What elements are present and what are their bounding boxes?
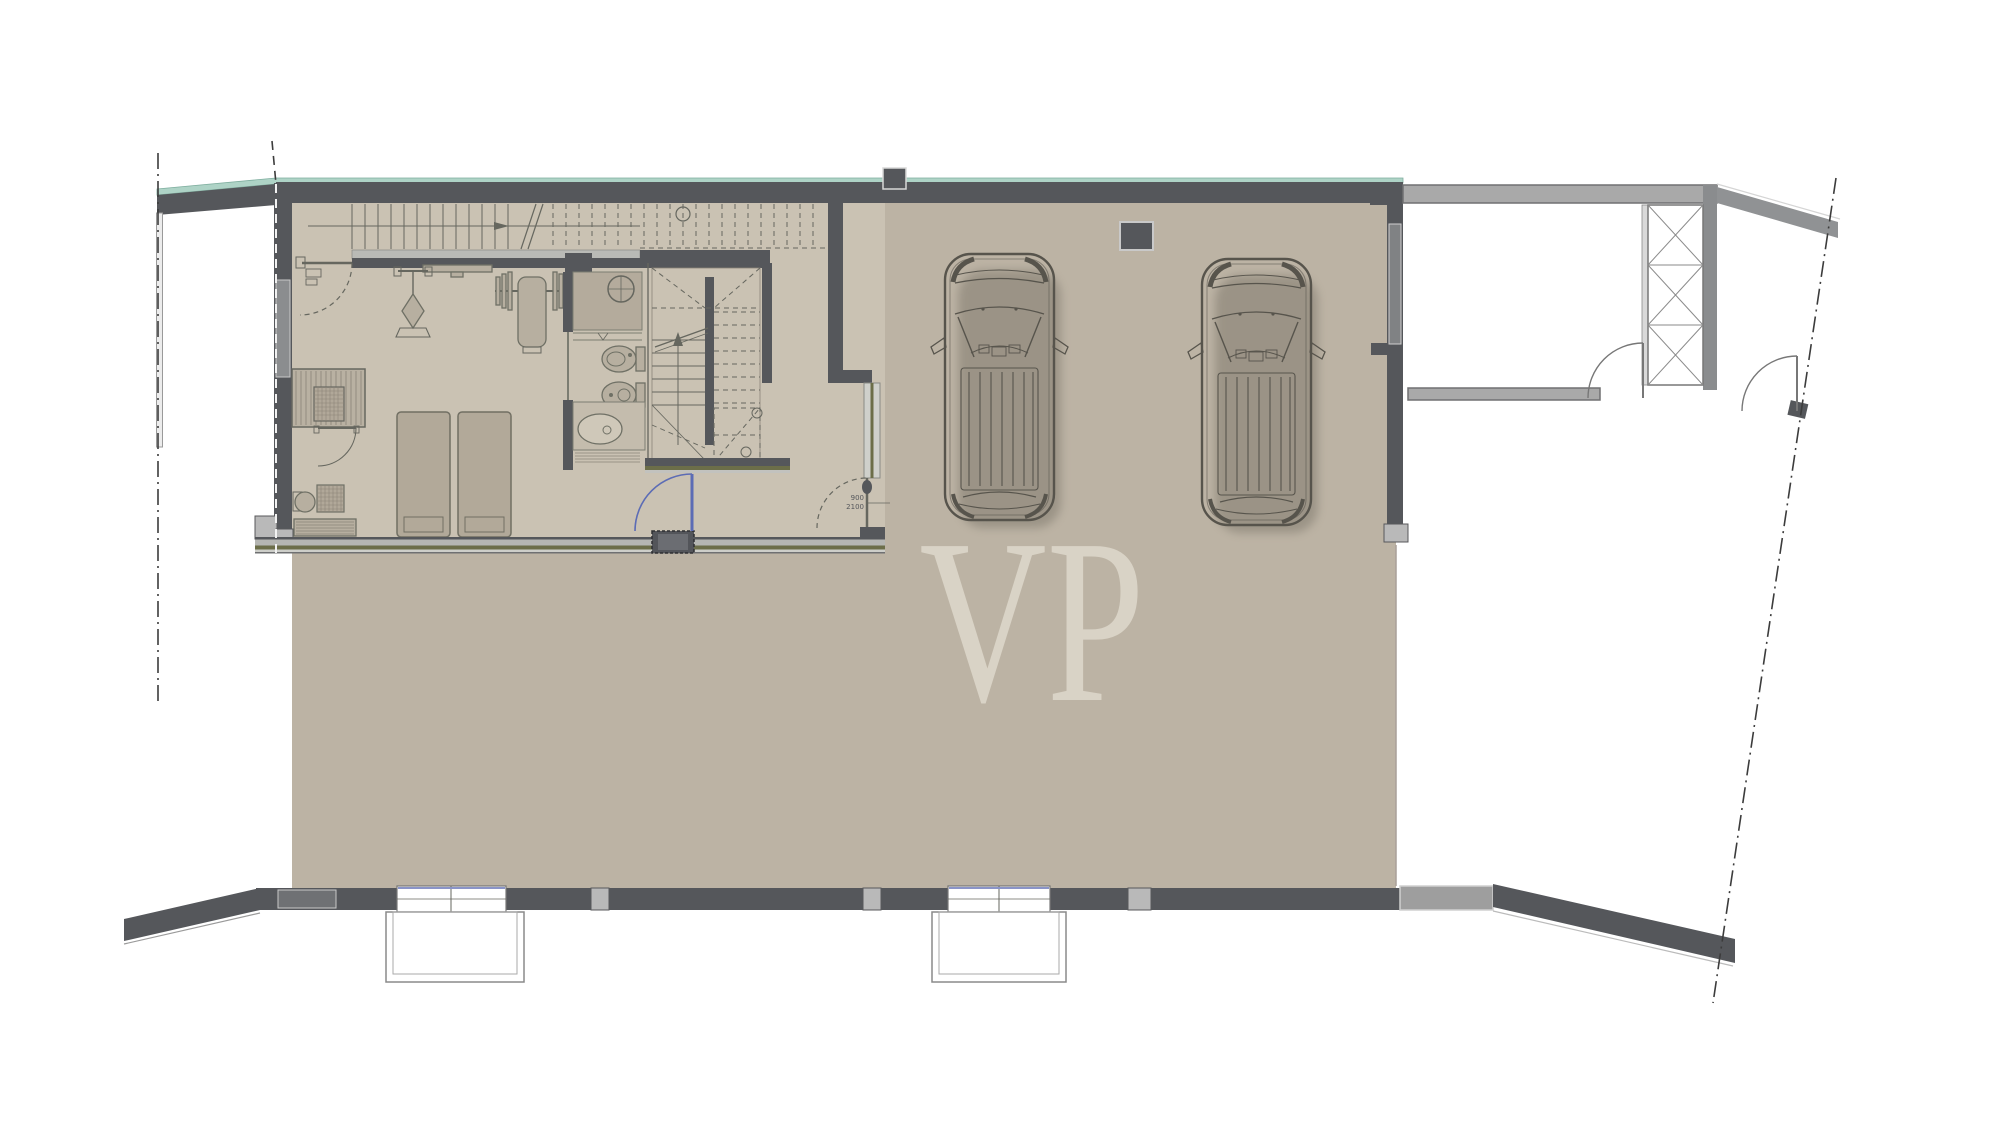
wall-vent — [883, 168, 906, 189]
hall-wall-cap — [838, 370, 872, 383]
west-wall-panel — [276, 280, 290, 377]
wall-pillar — [565, 253, 592, 272]
floor-plan-drawing: VP — [0, 0, 2000, 1125]
toilet — [602, 346, 645, 372]
bottom-wall-angled-left — [124, 888, 260, 944]
floor-plan-canvas: VP — [0, 0, 2000, 1125]
utility-floor-drain — [317, 485, 344, 512]
corridor-bottom-wall — [1408, 388, 1600, 400]
vanity-sink — [573, 402, 645, 450]
exterior-wall-top — [276, 182, 1403, 203]
corridor-door-2 — [1742, 356, 1808, 419]
window-lightwell-2 — [932, 886, 1066, 982]
vp-watermark: VP — [919, 491, 1144, 751]
utility-bench — [294, 519, 356, 536]
stair-north-wall — [640, 250, 770, 263]
stair-landing-rail — [352, 250, 640, 259]
door-threshold — [652, 531, 694, 553]
stair-east-wall — [762, 263, 772, 383]
hall-east-wall — [828, 203, 843, 383]
window-lightwell-1 — [386, 886, 524, 982]
sauna — [292, 369, 365, 427]
sloped-wall-right — [1717, 184, 1840, 238]
lounger-2 — [458, 412, 511, 537]
outer-wall-right — [1703, 185, 1717, 390]
shower — [573, 272, 642, 340]
door-height-label: 2100 — [846, 503, 864, 511]
stair-bottom-wall — [645, 458, 790, 473]
corridor-top-wall — [1403, 185, 1717, 203]
door-width-label: 900 — [851, 494, 864, 502]
stair-spine-wall — [705, 277, 714, 445]
spa-bottom-wall — [255, 537, 885, 554]
sauna-stove — [314, 387, 344, 421]
west-wall-pillar-cap — [255, 516, 277, 539]
section-line-top — [272, 141, 276, 184]
shaft-ladder — [1642, 205, 1703, 385]
wall-niche — [1120, 222, 1153, 250]
glass-partition — [864, 383, 880, 478]
lounger-1 — [397, 412, 450, 537]
bottom-wall-angled-right — [1400, 884, 1735, 966]
property-line-right — [1713, 178, 1836, 1003]
